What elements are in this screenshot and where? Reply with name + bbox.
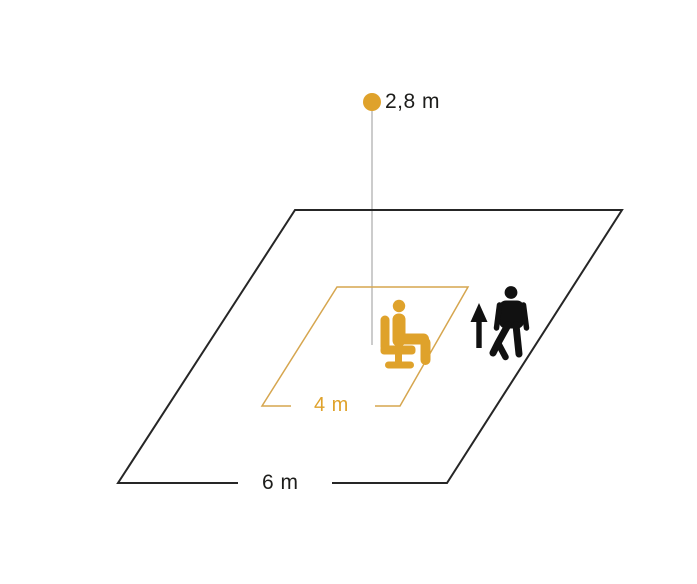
seated-range-label: 4 m: [314, 395, 349, 415]
walking-person-icon: [493, 286, 527, 357]
up-arrow-icon: [471, 303, 488, 348]
mounting-height-label: 2,8 m: [385, 91, 440, 112]
sensor-dot-icon: [363, 93, 381, 111]
diagram-canvas: 2,8 m 4 m 6 m: [0, 0, 697, 584]
walking-range-label: 6 m: [262, 472, 299, 493]
seated-zone-outline: [262, 287, 468, 406]
room-outline: [118, 210, 622, 483]
seated-person-icon: [381, 300, 431, 369]
diagram-graphics: [0, 0, 697, 584]
